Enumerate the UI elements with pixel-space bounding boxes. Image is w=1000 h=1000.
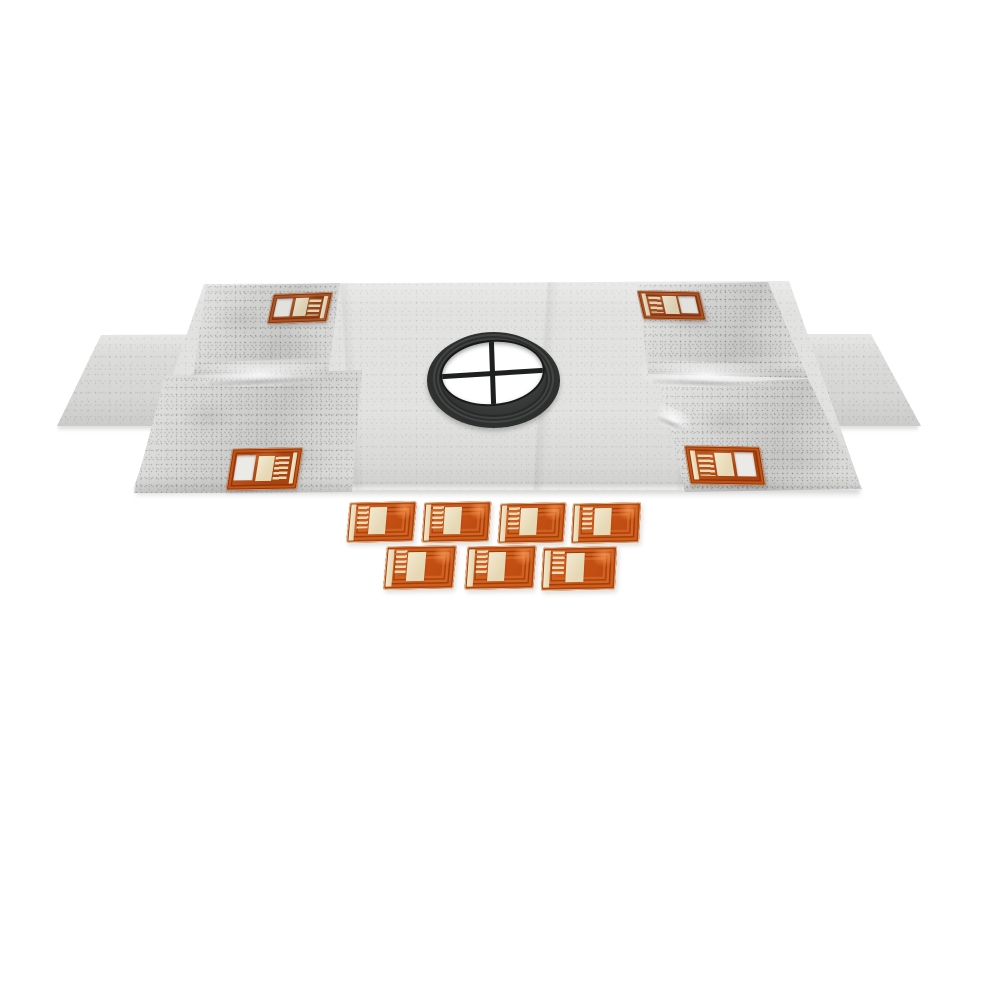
patch-highlight (610, 505, 637, 526)
patch-highlight (583, 549, 612, 572)
corner-patch-top-left (267, 292, 333, 324)
patch-pad (368, 507, 387, 535)
loose-patch-4 (571, 502, 641, 543)
patch-ladder-bars (432, 506, 444, 529)
loose-patch-7 (541, 546, 617, 590)
loose-patch-5 (383, 545, 457, 589)
patch-ladder-bars (581, 507, 593, 530)
patch-highlight (424, 548, 453, 571)
patch-ladder-bars (475, 551, 488, 575)
patch-pad (593, 508, 611, 536)
loose-patch-3 (498, 502, 567, 543)
patch-highlight (536, 505, 563, 526)
patch-pad (487, 551, 506, 581)
loose-patch-6 (464, 545, 536, 589)
patch-ladder-bars (394, 551, 407, 575)
patch-pad (565, 552, 585, 582)
patch-ladder-bars (552, 552, 565, 576)
corner-patch-bottom-left (226, 447, 304, 490)
patch-highlight (385, 504, 412, 525)
loose-patch-2 (422, 501, 492, 542)
patch-highlight (460, 504, 487, 525)
patch-window-cutout (734, 452, 757, 476)
patch-pad (406, 551, 426, 581)
patch-ladder-bars (508, 507, 520, 530)
drain-seal (427, 333, 560, 428)
product-photo: Waterproofing shower pan membrane kit wi… (0, 0, 1000, 1000)
loose-patch-1 (346, 501, 416, 542)
fold-curl-right (640, 359, 799, 390)
fold-curl-left (196, 357, 347, 388)
patch-pad (519, 508, 537, 536)
patch-highlight (504, 548, 532, 571)
corner-patch-bottom-right (684, 445, 766, 485)
patch-pad (714, 453, 734, 477)
patch-pad (444, 507, 463, 535)
patch-ladder-bars (357, 506, 370, 529)
corner-patch-top-right (637, 290, 707, 320)
